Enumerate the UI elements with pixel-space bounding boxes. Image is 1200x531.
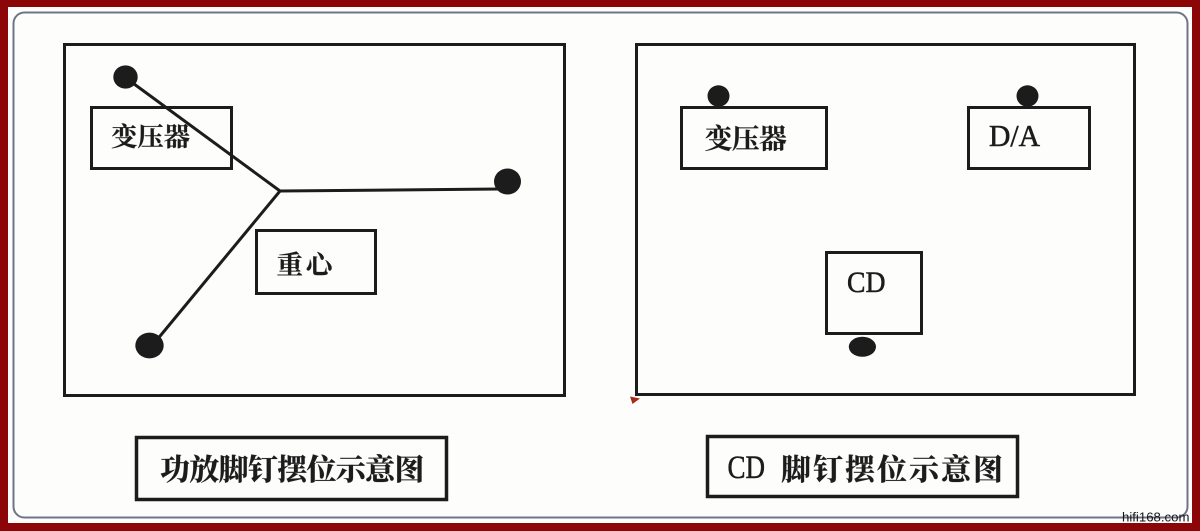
svg-text:hifi168.com: hifi168.com (1122, 510, 1189, 525)
svg-text:CD: CD (728, 450, 766, 486)
svg-text:D/A: D/A (989, 118, 1041, 153)
svg-text:CD: CD (847, 266, 886, 299)
